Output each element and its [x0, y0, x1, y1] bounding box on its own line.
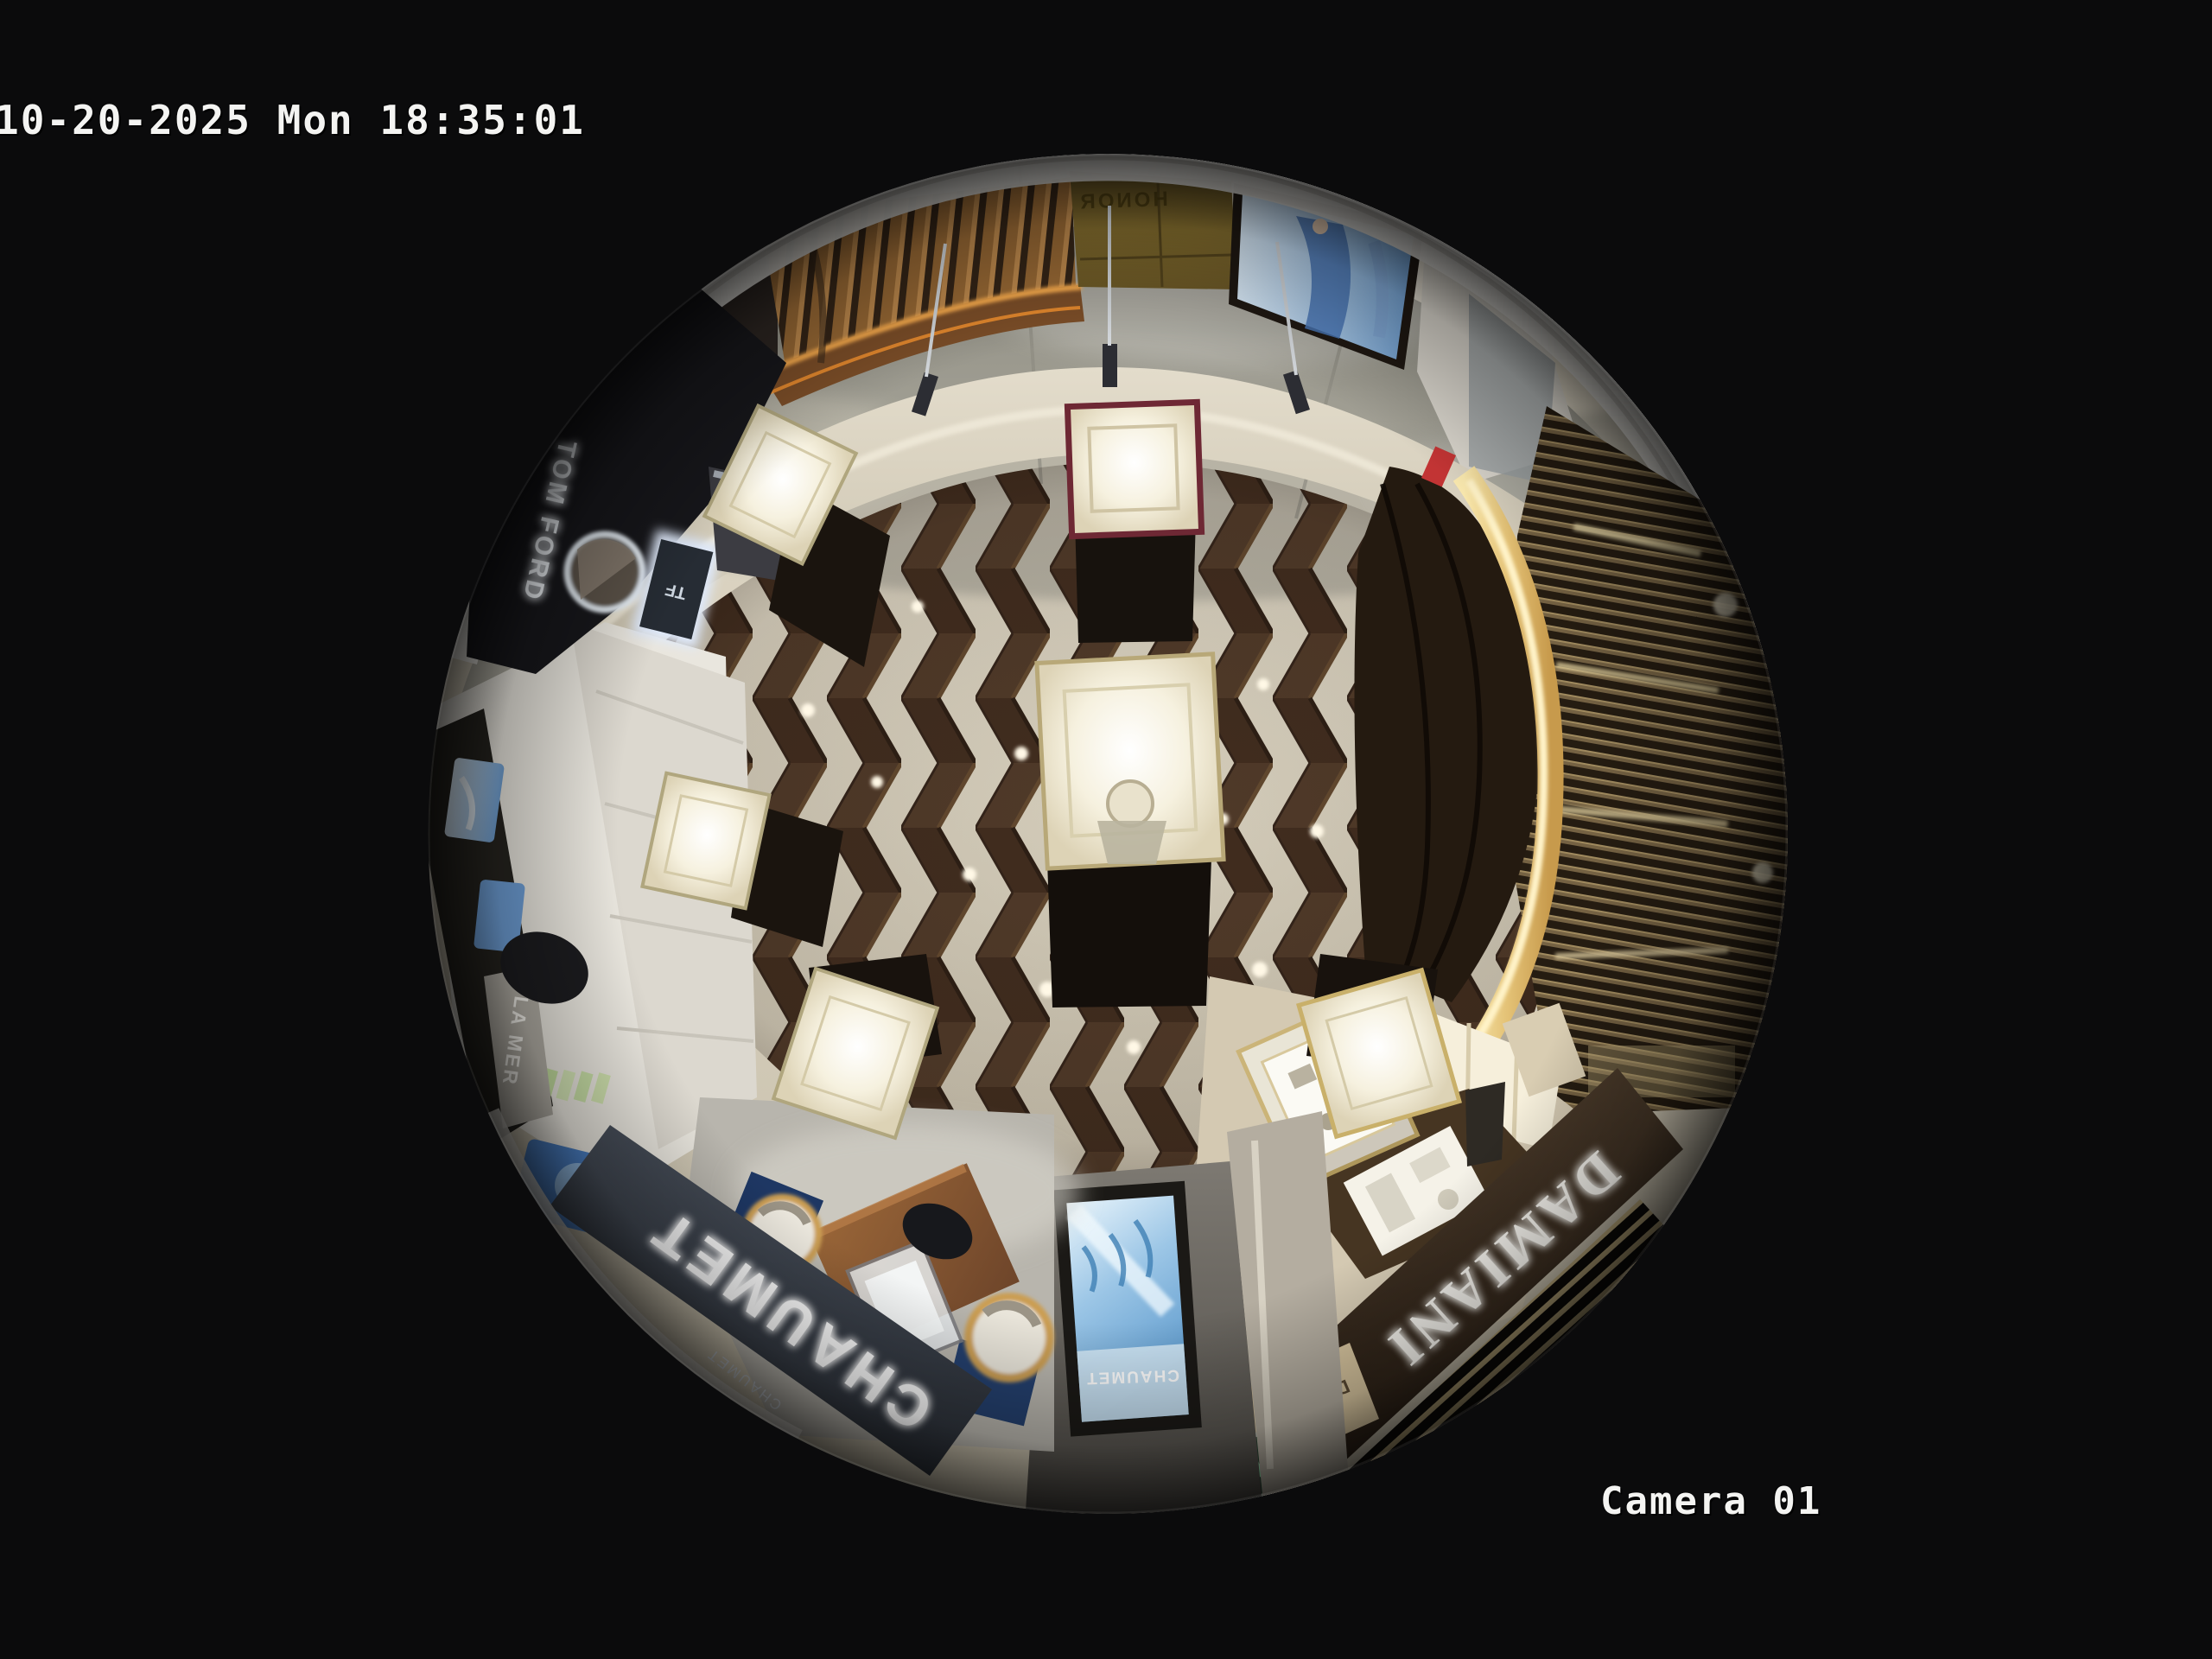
- osd-camera-label: Camera 01: [1600, 1479, 1821, 1523]
- osd-timestamp: 10-20-2025 Mon 18:35:01: [0, 97, 585, 143]
- fisheye-vignette: [428, 154, 1788, 1514]
- cctv-frame: HONOR: [0, 0, 2212, 1659]
- fisheye-camera-view: HONOR: [0, 0, 2212, 1659]
